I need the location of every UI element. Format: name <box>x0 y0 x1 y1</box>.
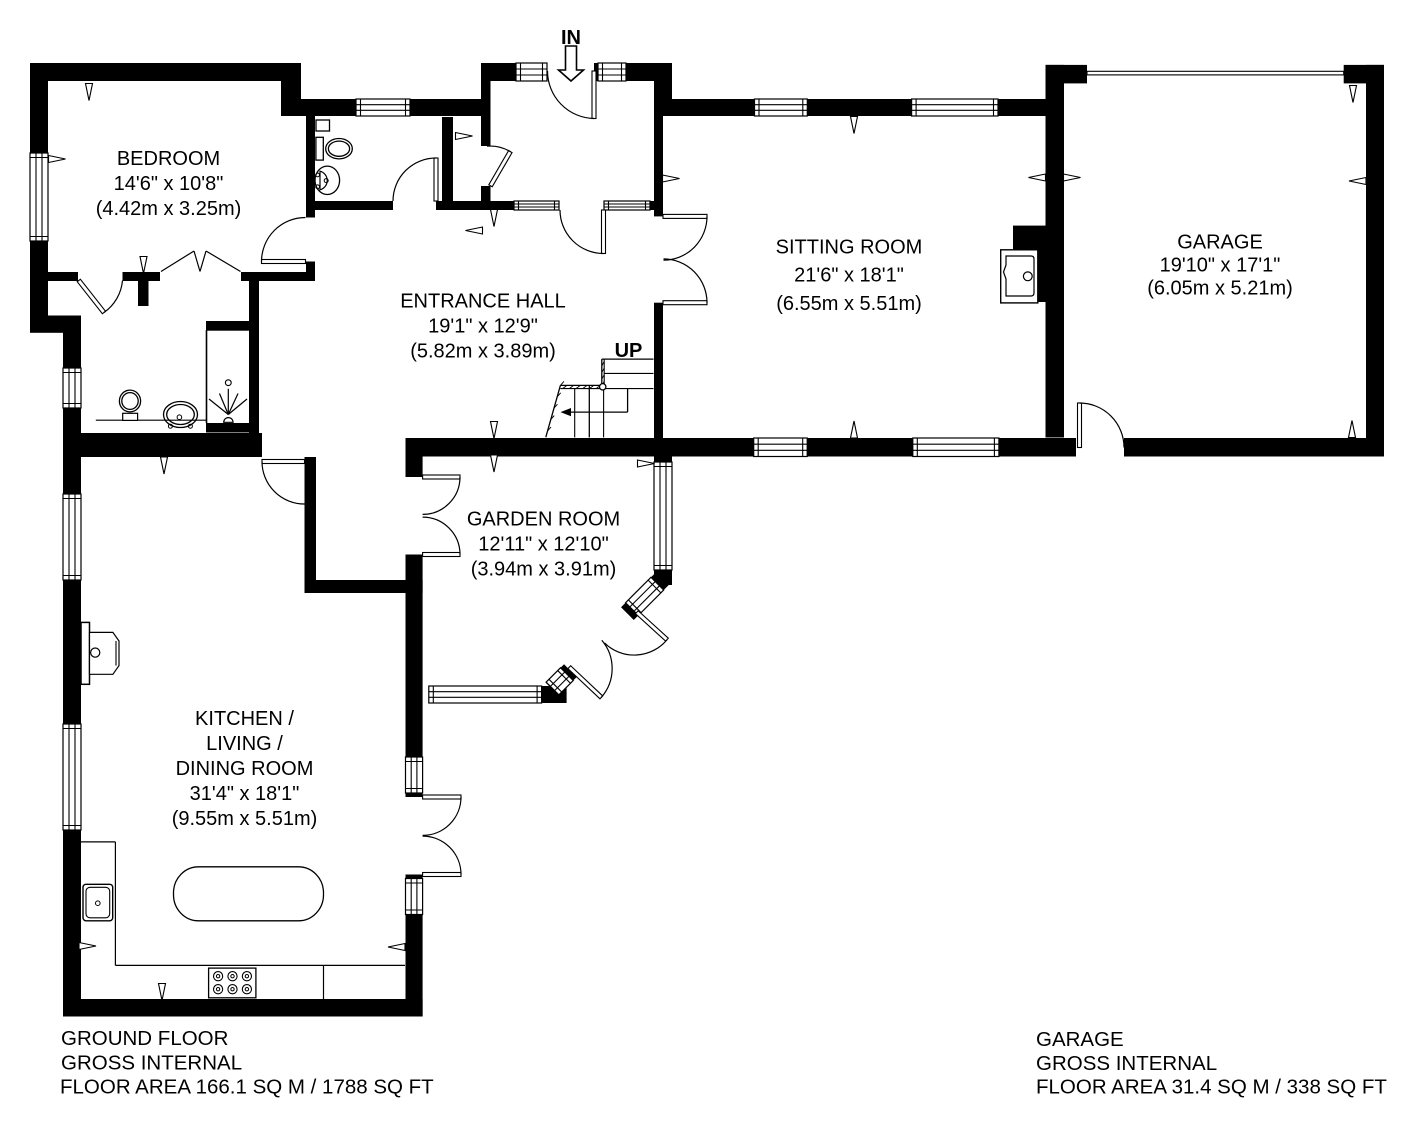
svg-text:14'6" x 10'8": 14'6" x 10'8" <box>114 173 224 195</box>
svg-text:FLOOR AREA 166.1 SQ M / 1788 S: FLOOR AREA 166.1 SQ M / 1788 SQ FT <box>60 1075 434 1098</box>
svg-text:GARAGE: GARAGE <box>1177 232 1263 254</box>
svg-text:(6.05m x 5.21m): (6.05m x 5.21m) <box>1147 278 1293 300</box>
svg-text:19'1" x 12'9": 19'1" x 12'9" <box>428 315 538 337</box>
svg-text:GROSS INTERNAL: GROSS INTERNAL <box>1036 1052 1217 1075</box>
svg-text:(6.55m x 5.51m): (6.55m x 5.51m) <box>776 293 922 315</box>
svg-text:LIVING /: LIVING / <box>206 733 283 755</box>
svg-text:19'10" x 17'1": 19'10" x 17'1" <box>1160 255 1281 277</box>
svg-text:UP: UP <box>615 340 643 362</box>
svg-text:GARAGE: GARAGE <box>1036 1028 1124 1051</box>
svg-text:GARDEN ROOM: GARDEN ROOM <box>467 509 620 531</box>
svg-text:12'11" x 12'10": 12'11" x 12'10" <box>478 534 608 556</box>
svg-text:(5.82m x 3.89m): (5.82m x 3.89m) <box>410 340 556 362</box>
svg-text:31'4" x 18'1": 31'4" x 18'1" <box>190 783 300 805</box>
svg-text:DINING ROOM: DINING ROOM <box>176 758 314 780</box>
svg-text:BEDROOM: BEDROOM <box>117 148 220 170</box>
svg-text:(4.42m x 3.25m): (4.42m x 3.25m) <box>96 198 242 220</box>
svg-text:FLOOR AREA 31.4 SQ M / 338 SQ: FLOOR AREA 31.4 SQ M / 338 SQ FT <box>1036 1075 1387 1098</box>
svg-text:GROUND FLOOR: GROUND FLOOR <box>61 1027 228 1050</box>
svg-text:GROSS INTERNAL: GROSS INTERNAL <box>61 1051 242 1074</box>
svg-text:(9.55m x 5.51m): (9.55m x 5.51m) <box>172 808 318 830</box>
svg-text:SITTING ROOM: SITTING ROOM <box>776 237 923 259</box>
svg-text:KITCHEN /: KITCHEN / <box>195 708 294 730</box>
svg-text:21'6" x 18'1": 21'6" x 18'1" <box>794 265 904 287</box>
svg-text:ENTRANCE HALL: ENTRANCE HALL <box>400 291 566 313</box>
svg-text:(3.94m x 3.91m): (3.94m x 3.91m) <box>471 559 617 581</box>
svg-text:IN: IN <box>561 27 581 49</box>
